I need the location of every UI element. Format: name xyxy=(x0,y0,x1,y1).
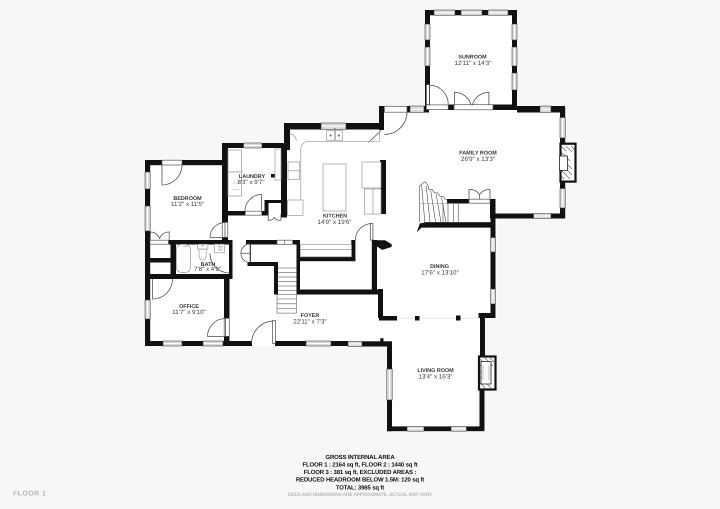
svg-text:12'11" x 14'3": 12'11" x 14'3" xyxy=(455,60,492,67)
svg-text:17'6" x 13'10": 17'6" x 13'10" xyxy=(421,269,458,276)
svg-text:11'7" x 9'10": 11'7" x 9'10" xyxy=(172,309,205,316)
svg-text:TOTAL: 3985 sq ft: TOTAL: 3985 sq ft xyxy=(336,484,384,491)
svg-text:11'2" x 11'5": 11'2" x 11'5" xyxy=(171,201,204,208)
svg-text:8'3" x 9'7": 8'3" x 9'7" xyxy=(237,179,264,186)
svg-text:FLOOR 3 : 381 sq ft, EXCLUDED: FLOOR 3 : 381 sq ft, EXCLUDED AREAS : xyxy=(304,469,417,476)
svg-text:GROSS INTERNAL AREA: GROSS INTERNAL AREA xyxy=(325,454,395,461)
svg-text:FLOOR 1 : 2164 sq ft, FLOOR 2: FLOOR 1 : 2164 sq ft, FLOOR 2 : 1440 sq … xyxy=(302,461,417,468)
svg-text:REDUCED HEADROOM BELOW 1.5M: 1: REDUCED HEADROOM BELOW 1.5M: 120 sq ft xyxy=(296,477,424,484)
svg-text:7'8" x 4'9": 7'8" x 4'9" xyxy=(194,266,221,273)
svg-text:22'11" x 7'3": 22'11" x 7'3" xyxy=(293,318,326,325)
svg-text:SIZES AND DIMENSIONS ARE APPRO: SIZES AND DIMENSIONS ARE APPROXIMATE, AC… xyxy=(287,492,433,498)
svg-text:13'4" x 16'3": 13'4" x 16'3" xyxy=(419,373,453,380)
svg-text:14'9" x 19'6": 14'9" x 19'6" xyxy=(318,219,352,226)
svg-text:26'9" x 13'3": 26'9" x 13'3" xyxy=(461,156,495,163)
svg-text:FLOOR 1: FLOOR 1 xyxy=(13,491,46,498)
